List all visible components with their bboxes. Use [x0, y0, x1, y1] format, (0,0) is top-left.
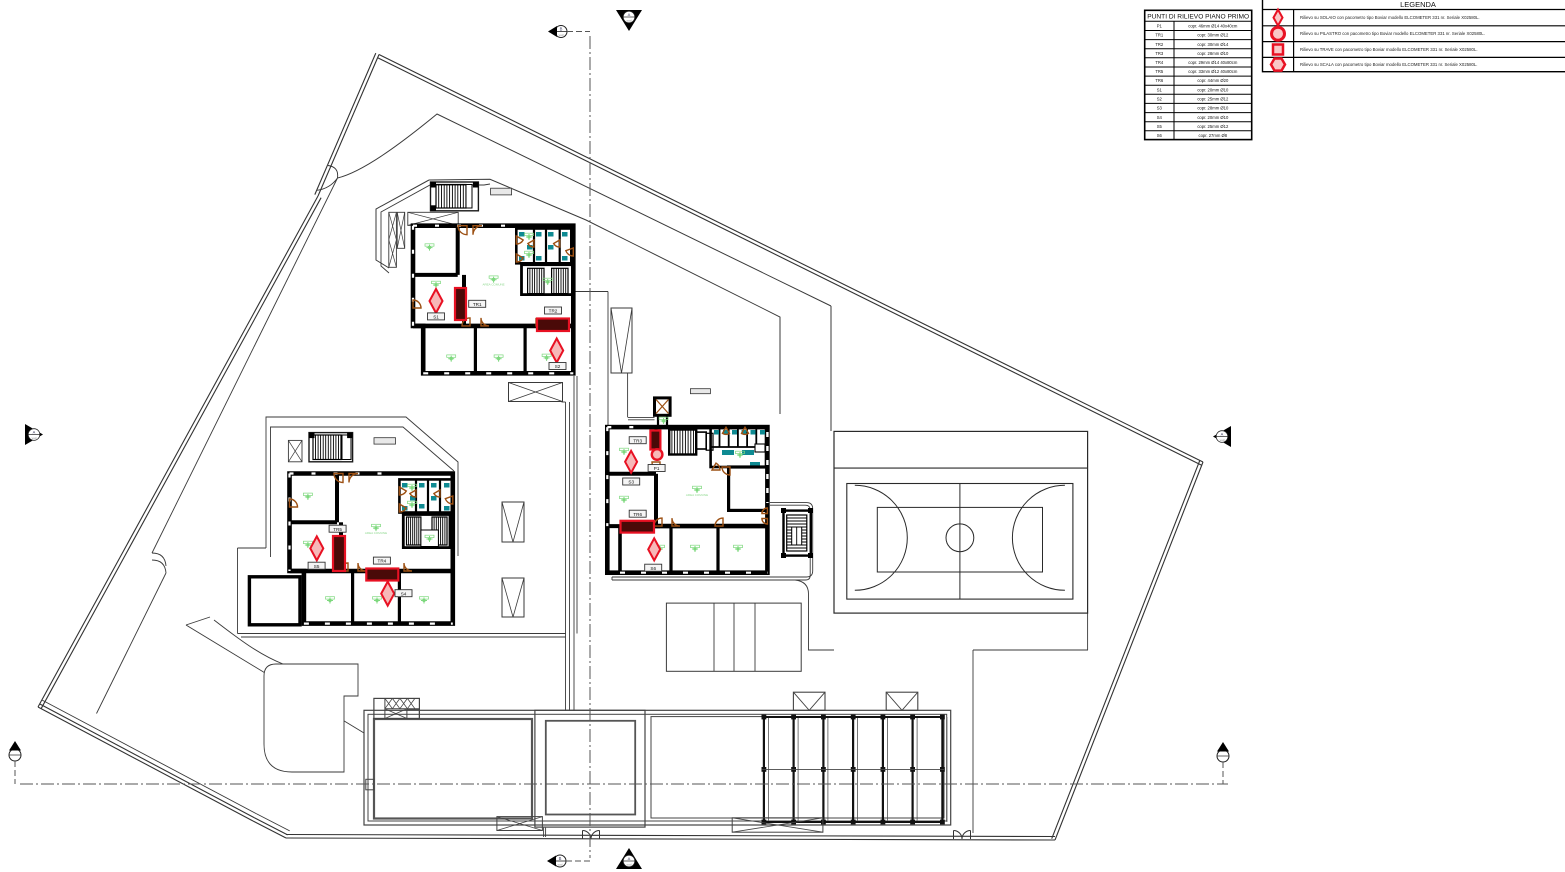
svg-text:A: A [628, 12, 631, 17]
svg-text:TR3: TR3 [1155, 51, 1164, 56]
svg-text:vud: vud [558, 863, 563, 867]
svg-text:A: A [33, 430, 36, 435]
svg-text:copr. 28mm Ø10: copr. 28mm Ø10 [1197, 51, 1229, 56]
svg-text:copr. 44mm Ø20: copr. 44mm Ø20 [1197, 78, 1229, 83]
svg-text:B: B [560, 27, 563, 32]
svg-text:TR2: TR2 [549, 309, 558, 314]
svg-text:PUNTI DI RILIEVO PIANO PRIMO: PUNTI DI RILIEVO PIANO PRIMO [1147, 13, 1249, 20]
svg-text:AREA COMUNE: AREA COMUNE [365, 531, 387, 535]
svg-text:copr. 25mm Ø12: copr. 25mm Ø12 [1197, 124, 1229, 129]
svg-text:S5: S5 [314, 564, 320, 569]
svg-text:S4: S4 [401, 591, 407, 596]
svg-text:Rilievo su TRAVE con pacometro: Rilievo su TRAVE con pacometro tipo Bovi… [1300, 47, 1478, 52]
svg-text:copr. 46mm Ø14 40x40cm: copr. 46mm Ø14 40x40cm [1188, 24, 1238, 29]
svg-text:Rilievo su PILASTRO con pacome: Rilievo su PILASTRO con pacometro tipo B… [1300, 31, 1485, 36]
svg-text:S2: S2 [555, 364, 561, 369]
svg-text:TR1: TR1 [473, 302, 482, 307]
svg-text:Rilievo su SOLAIO con pacometr: Rilievo su SOLAIO con pacometro tipo Bov… [1300, 15, 1480, 20]
svg-text:vud: vud [627, 863, 632, 867]
svg-text:copr. 20mm Ø10: copr. 20mm Ø10 [1197, 87, 1229, 92]
svg-text:TR5: TR5 [333, 527, 342, 532]
svg-text:A: A [1221, 432, 1224, 437]
svg-text:copr. 33mm Ø12 40x80cm: copr. 33mm Ø12 40x80cm [1188, 69, 1238, 74]
svg-text:TR1: TR1 [1155, 33, 1164, 38]
svg-text:Rilievo su SCALA con pacometro: Rilievo su SCALA con pacometro tipo Bovi… [1300, 62, 1477, 67]
svg-text:S2: S2 [1157, 96, 1163, 101]
svg-text:P1: P1 [654, 466, 660, 471]
svg-text:TR4: TR4 [1155, 60, 1164, 65]
svg-text:S4: S4 [1157, 115, 1163, 120]
svg-text:AREA COMUNE: AREA COMUNE [483, 283, 505, 287]
svg-text:S6: S6 [650, 566, 656, 571]
svg-text:TR6: TR6 [1155, 78, 1164, 83]
svg-text:copr. 28mm Ø10: copr. 28mm Ø10 [1197, 106, 1229, 111]
svg-text:vud: vud [32, 436, 37, 440]
svg-text:copr. 25mm Ø12: copr. 25mm Ø12 [1197, 96, 1229, 101]
svg-text:vud: vud [627, 19, 632, 23]
svg-text:copr. 30mm Ø12: copr. 30mm Ø12 [1197, 33, 1229, 38]
svg-text:TR2: TR2 [1155, 42, 1164, 47]
svg-text:vud: vud [1220, 438, 1225, 442]
svg-text:B: B [559, 856, 562, 861]
svg-text:TR6: TR6 [633, 512, 642, 517]
svg-text:AREA COMUNE: AREA COMUNE [686, 493, 708, 497]
svg-text:TR3: TR3 [633, 438, 642, 443]
svg-text:S6: S6 [1157, 133, 1163, 138]
svg-text:TR5: TR5 [1155, 69, 1164, 74]
svg-text:copr. 30mm Ø14: copr. 30mm Ø14 [1197, 42, 1229, 47]
svg-text:A: A [628, 856, 631, 861]
svg-text:TR4: TR4 [378, 559, 387, 564]
svg-text:LEGENDA: LEGENDA [1400, 0, 1436, 9]
svg-text:S3: S3 [628, 480, 634, 485]
svg-text:copr. 20mm Ø10: copr. 20mm Ø10 [1197, 115, 1229, 120]
svg-text:P1: P1 [1157, 24, 1163, 29]
svg-text:S5: S5 [1157, 124, 1163, 129]
svg-text:S1: S1 [433, 315, 439, 320]
svg-text:S1: S1 [1157, 87, 1163, 92]
svg-text:vud: vud [559, 33, 564, 37]
svg-text:S3: S3 [1157, 106, 1163, 111]
svg-text:copr. 27mm Ø8: copr. 27mm Ø8 [1198, 133, 1227, 138]
svg-text:copr. 29mm Ø14 40x80cm: copr. 29mm Ø14 40x80cm [1188, 60, 1238, 65]
